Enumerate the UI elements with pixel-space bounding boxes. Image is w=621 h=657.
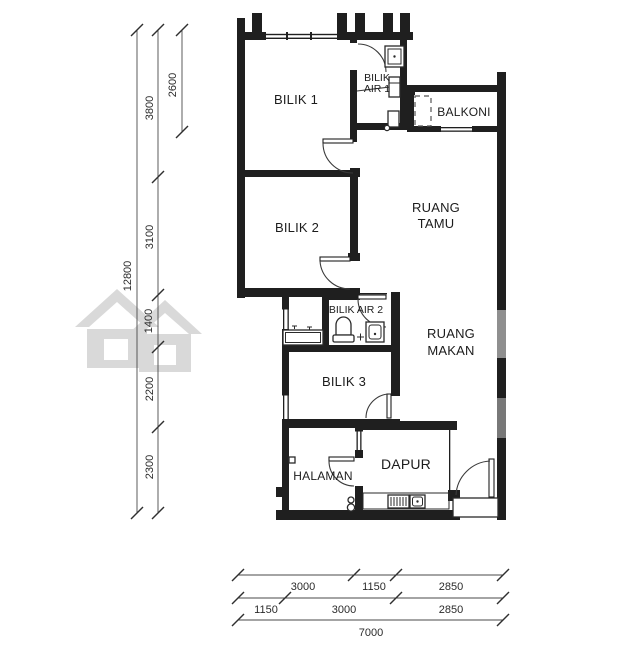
wall-bilik3-right	[391, 292, 400, 384]
room-label-ruangtamu-line2: TAMU	[418, 216, 455, 231]
room-label-bilikair2: BILIK AIR 2	[329, 304, 383, 316]
floor-trap-icon	[384, 125, 389, 130]
wall-pillar	[391, 384, 400, 396]
wall-balkoni-top	[407, 85, 498, 92]
dim-left-seg2: 3100	[144, 225, 156, 249]
tap-icon	[292, 326, 297, 329]
window-cap	[355, 429, 363, 432]
window-left	[288, 395, 289, 419]
floor-plan-page: 12800 3800 3100 1400 2200 2300 2600 3000…	[0, 0, 621, 657]
room-label-bilik1: BILIK 1	[274, 92, 318, 107]
door-arc-bilik1	[323, 143, 353, 173]
balkoni-dashed-unit	[415, 96, 431, 126]
dim-bottom-row2-c: 2850	[439, 604, 463, 616]
wall-wetarea-bottom	[282, 345, 400, 352]
door-leaf-bilik3	[387, 394, 391, 418]
wall-right-outer	[497, 72, 506, 520]
wall-left-lower	[282, 419, 289, 511]
wall-bilikair1-bottom	[352, 123, 414, 130]
watermark-house-logo	[75, 289, 202, 372]
column-stub	[337, 13, 347, 35]
sink-drain-icon	[416, 500, 418, 502]
toilet-bowl	[336, 317, 351, 335]
dapur-counter-edge	[449, 430, 450, 490]
room-label-dapur: DAPUR	[381, 456, 431, 472]
window-top	[266, 38, 337, 39]
room-label-ruangmakan-line1: RUANG	[427, 326, 475, 341]
floor-plan-drawing: 12800 3800 3100 1400 2200 2300 2600 3000…	[0, 0, 621, 657]
door-leaf-bilik2	[320, 257, 350, 261]
wall-junction	[410, 90, 415, 95]
window-left	[283, 309, 284, 331]
floor-trap-icon	[348, 497, 354, 503]
wall-halaman-dapur	[355, 450, 363, 458]
wall-dapur-top	[355, 421, 457, 430]
wall-bilik1-bilik2	[244, 170, 352, 177]
wall-bilikair1-left	[350, 70, 357, 127]
window-vent	[360, 431, 361, 451]
dim-left-seg4: 2200	[144, 377, 156, 401]
window-mullion	[310, 32, 312, 40]
door-leaf-halaman	[329, 457, 354, 461]
column-stub	[355, 13, 365, 35]
door-leaf-bilikair2	[358, 295, 386, 299]
watermark-fade	[496, 310, 507, 358]
wall-top-right	[337, 32, 413, 40]
dim-left-inner: 2600	[167, 73, 179, 97]
room-label-bilik2: BILIK 2	[275, 220, 319, 235]
room-label-halaman: HALAMAN	[293, 469, 352, 483]
balkoni-window	[441, 131, 472, 132]
dim-left-seg3: 1400	[143, 309, 155, 333]
dim-left-overall: 12800	[122, 261, 134, 292]
watermark-fade	[496, 398, 507, 438]
wall-bilik2-right	[350, 177, 358, 255]
wall-left-upper	[237, 18, 245, 298]
door-head	[360, 293, 387, 294]
sink-drain-icon	[374, 333, 376, 335]
dimension-lines-left: 12800 3800 3100 1400 2200 2300 2600	[122, 24, 188, 519]
toilet-base	[333, 335, 354, 342]
wall-halaman-dapur	[355, 486, 363, 511]
door-arc-entrance	[456, 461, 490, 495]
room-label-bilikair1-line2: AIR 1	[364, 83, 390, 95]
dim-bottom-row1-c: 2850	[439, 581, 463, 593]
wall-balkoni-bottom	[472, 126, 498, 132]
wall-left-lower	[282, 293, 289, 309]
entrance-porch-step	[453, 498, 498, 517]
window-top	[266, 34, 337, 35]
door-arc-bilik2	[320, 261, 350, 289]
column-stub	[252, 13, 262, 35]
meter-box	[289, 457, 295, 463]
column-stub	[383, 13, 393, 35]
dim-bottom-row2-a: 1150	[254, 604, 278, 616]
dim-bottom-overall: 7000	[359, 627, 383, 639]
window-left	[283, 395, 284, 419]
door-arc-bilik3	[366, 394, 390, 418]
door-leaf-entrance	[489, 459, 494, 497]
wall-pillar	[276, 487, 289, 497]
window-vent	[357, 431, 358, 451]
room-label-bilik3: BILIK 3	[322, 374, 366, 389]
balkoni-window	[441, 127, 472, 128]
dimension-lines-bottom: 3000 1150 2850 1150 3000 2850 7000	[232, 569, 509, 639]
window-left	[288, 309, 289, 331]
cross-icon	[357, 334, 364, 341]
window-mullion	[286, 32, 288, 40]
wc-cistern	[389, 77, 400, 97]
basin-bilikair1	[388, 111, 399, 127]
wall-top-left	[237, 32, 266, 40]
dim-bottom-row2-b: 3000	[332, 604, 356, 616]
door-leaf-bilik1	[323, 139, 353, 143]
floor-trap-icon	[347, 504, 354, 511]
door-arc-bilikair1	[358, 44, 386, 72]
room-label-balkoni: BALKONI	[437, 105, 490, 119]
wall-balkoni-bottom	[407, 126, 441, 132]
dim-bottom-row1-a: 3000	[291, 581, 315, 593]
wall-bilikair2-top	[322, 292, 360, 300]
room-label-ruangtamu-line1: RUANG	[412, 200, 460, 215]
shower-drain-icon	[393, 55, 395, 57]
dim-left-seg1: 3800	[144, 96, 156, 120]
wall-bilikair1	[350, 40, 357, 43]
room-label-ruangmakan-line2: MAKAN	[427, 343, 474, 358]
dim-bottom-row1-b: 1150	[362, 581, 386, 593]
wall-bottom	[276, 510, 460, 520]
column-stub	[400, 13, 410, 35]
dim-left-seg5: 2300	[144, 455, 156, 479]
